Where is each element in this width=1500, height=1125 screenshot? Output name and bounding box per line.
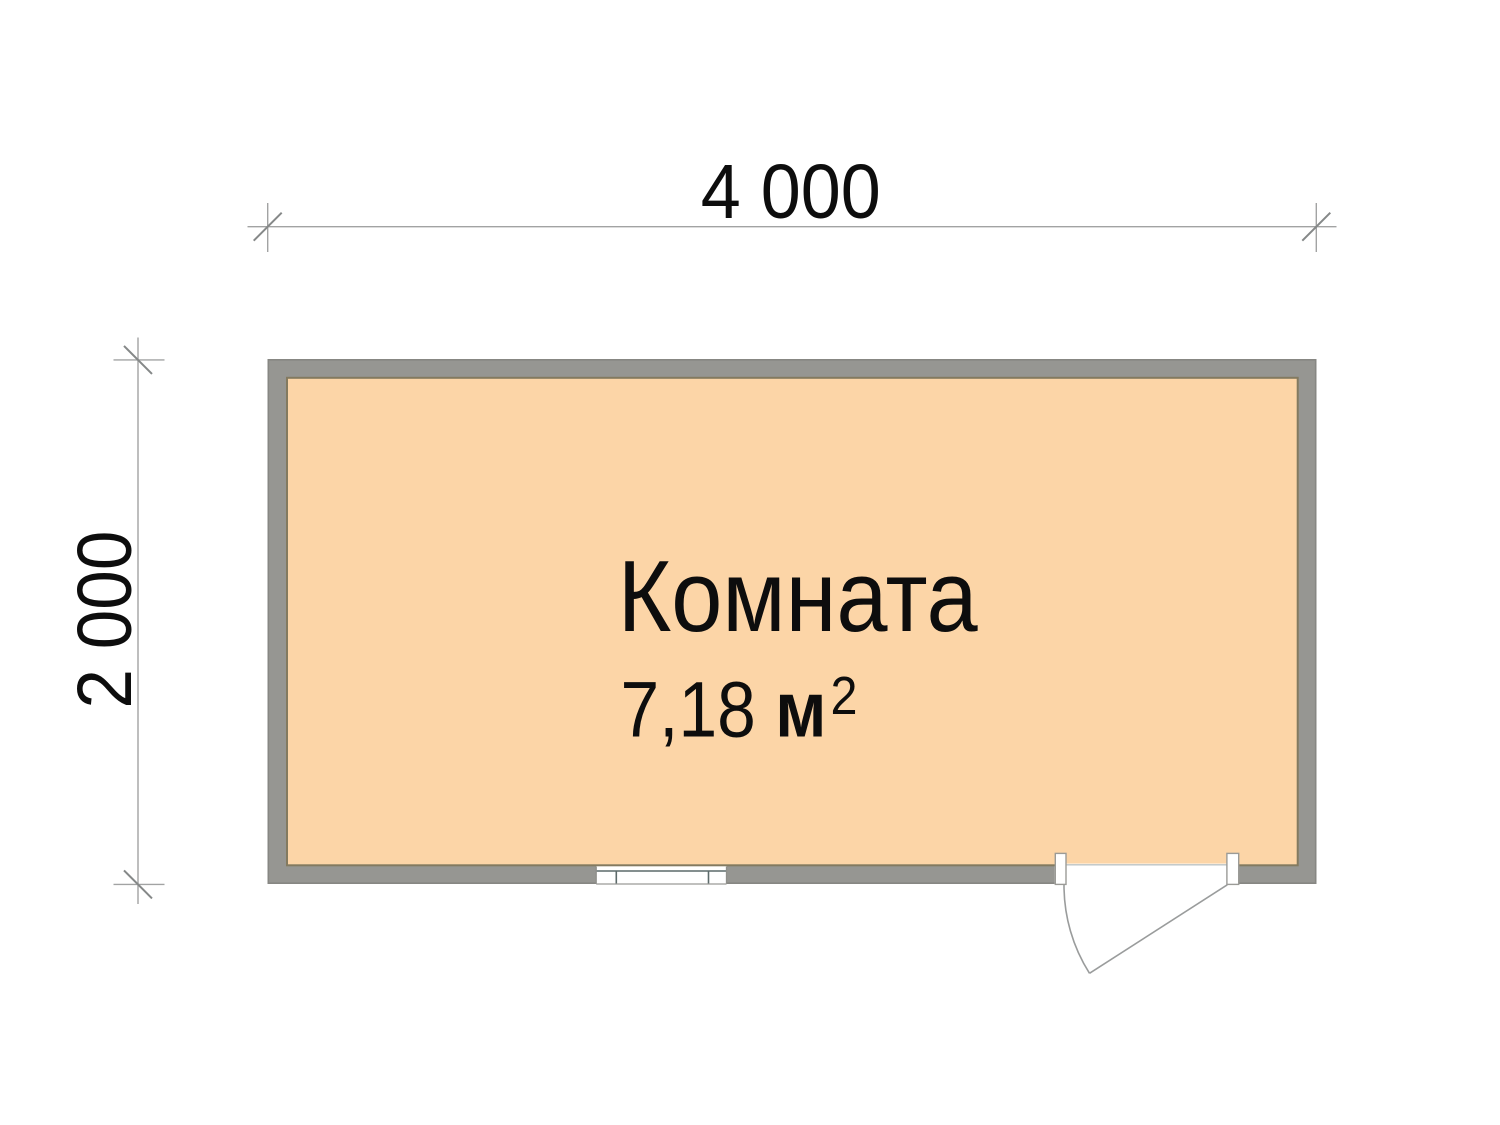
svg-text:Комната: Комната	[618, 541, 979, 653]
svg-text:7,18 м: 7,18 м	[621, 664, 827, 753]
svg-text:4 000: 4 000	[701, 149, 881, 235]
svg-text:2: 2	[831, 666, 858, 726]
svg-text:2 000: 2 000	[62, 531, 148, 709]
